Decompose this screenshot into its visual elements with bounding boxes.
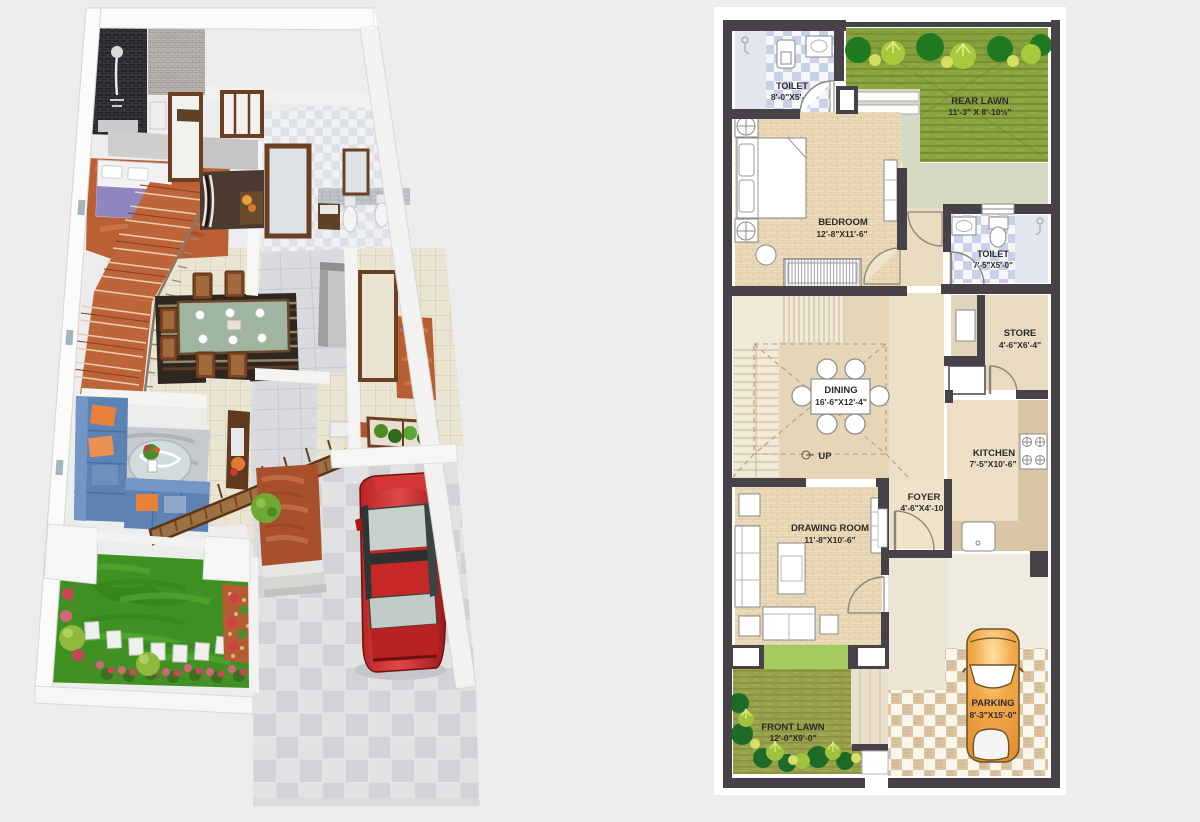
- svg-text:4'-6"X4'-10": 4'-6"X4'-10": [900, 503, 947, 513]
- svg-text:12'-8"X11'-6": 12'-8"X11'-6": [816, 229, 867, 239]
- svg-text:STORE: STORE: [1004, 328, 1037, 339]
- svg-text:12'-0"X9'-0": 12'-0"X9'-0": [769, 733, 816, 743]
- svg-text:DRAWING ROOM: DRAWING ROOM: [791, 523, 869, 534]
- svg-text:REAR LAWN: REAR LAWN: [951, 96, 1009, 107]
- svg-text:7'-5"X10'-6": 7'-5"X10'-6": [969, 459, 1016, 469]
- svg-text:DINING: DINING: [824, 385, 857, 396]
- svg-text:FRONT LAWN: FRONT LAWN: [761, 722, 824, 733]
- svg-text:FOYER: FOYER: [908, 492, 941, 503]
- svg-text:11'-8"X10'-6": 11'-8"X10'-6": [804, 535, 855, 545]
- svg-text:TOILET: TOILET: [776, 81, 808, 91]
- svg-text:UP: UP: [818, 451, 832, 462]
- svg-text:16'-6"X12'-4": 16'-6"X12'-4": [815, 397, 867, 407]
- svg-text:4'-6"X6'-4": 4'-6"X6'-4": [999, 340, 1041, 350]
- svg-text:11'-3" X 8'-10½": 11'-3" X 8'-10½": [948, 107, 1011, 117]
- svg-text:BEDROOM: BEDROOM: [818, 217, 868, 228]
- svg-text:KITCHEN: KITCHEN: [973, 448, 1015, 459]
- svg-text:TOILET: TOILET: [977, 249, 1009, 259]
- svg-text:8'-3"X15'-0": 8'-3"X15'-0": [969, 710, 1016, 720]
- svg-text:PARKING: PARKING: [971, 698, 1014, 709]
